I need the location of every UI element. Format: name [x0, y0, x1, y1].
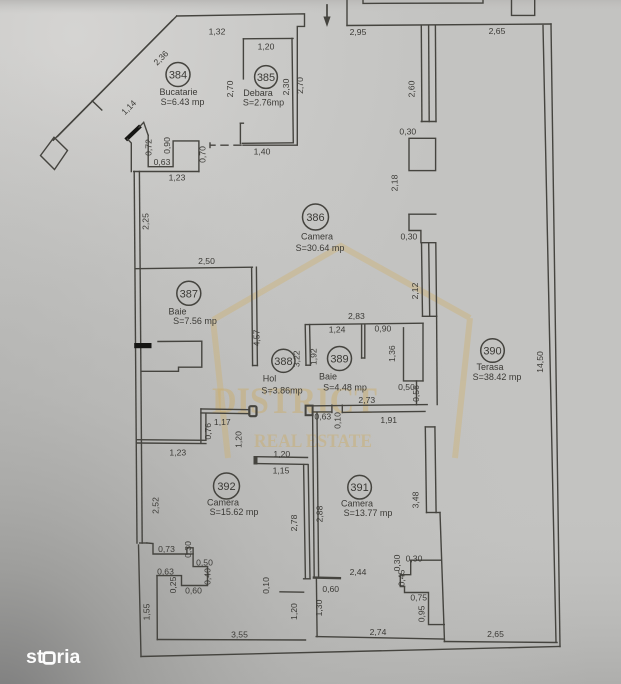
svg-text:0,30: 0,30	[399, 127, 416, 137]
svg-text:0,70: 0,70	[198, 146, 208, 163]
svg-text:0,30: 0,30	[183, 541, 193, 558]
svg-text:0,25: 0,25	[168, 576, 178, 593]
svg-text:14,50: 14,50	[535, 351, 545, 373]
svg-text:0,76: 0,76	[203, 423, 213, 440]
svg-text:0,60: 0,60	[185, 585, 202, 595]
svg-text:1,15: 1,15	[273, 466, 290, 476]
svg-text:3,55: 3,55	[231, 630, 248, 640]
svg-text:2,88: 2,88	[315, 505, 325, 522]
svg-text:0,45: 0,45	[397, 569, 407, 586]
svg-text:2,12: 2,12	[410, 282, 420, 299]
svg-text:0,63: 0,63	[157, 567, 174, 577]
svg-text:S=2.76mp: S=2.76mp	[243, 98, 284, 108]
svg-text:S=4.48 mp: S=4.48 mp	[323, 382, 367, 392]
svg-text:2,18: 2,18	[390, 174, 400, 191]
svg-text:S=7.56 mp: S=7.56 mp	[173, 316, 217, 326]
svg-text:Camera: Camera	[207, 498, 239, 508]
svg-text:1,40: 1,40	[254, 147, 271, 157]
svg-text:S=3.86mp: S=3.86mp	[261, 386, 302, 396]
svg-text:1,24: 1,24	[329, 325, 346, 335]
svg-text:0,95: 0,95	[416, 605, 426, 622]
svg-text:0,63: 0,63	[314, 412, 331, 422]
svg-text:ria: ria	[57, 646, 81, 668]
svg-text:1,20: 1,20	[273, 449, 290, 459]
svg-text:2,44: 2,44	[350, 567, 367, 577]
svg-text:Camera: Camera	[341, 499, 373, 509]
svg-text:S=6.43 mp: S=6.43 mp	[161, 97, 205, 107]
svg-text:390: 390	[483, 346, 501, 358]
svg-text:384: 384	[169, 70, 187, 82]
svg-text:0,10: 0,10	[332, 412, 342, 429]
svg-text:1,91: 1,91	[380, 415, 397, 425]
svg-text:2,60: 2,60	[407, 80, 417, 97]
svg-text:Bucatarie: Bucatarie	[159, 87, 197, 97]
svg-text:1,92: 1,92	[309, 348, 319, 365]
svg-text:0,60: 0,60	[322, 584, 339, 594]
svg-text:0,40: 0,40	[203, 568, 213, 585]
svg-text:387: 387	[180, 288, 198, 300]
svg-text:0,10: 0,10	[261, 577, 271, 594]
svg-text:Hol: Hol	[263, 373, 277, 383]
svg-text:391: 391	[350, 482, 368, 494]
svg-text:388: 388	[274, 356, 292, 368]
svg-text:S=30.64 mp: S=30.64 mp	[296, 243, 345, 253]
svg-text:0,90: 0,90	[375, 323, 392, 333]
svg-text:1,23: 1,23	[169, 173, 186, 183]
svg-text:0,72: 0,72	[144, 139, 154, 156]
svg-text:S=15.62 mp: S=15.62 mp	[210, 507, 259, 517]
svg-text:1,20: 1,20	[289, 603, 299, 620]
svg-text:0,30: 0,30	[392, 554, 402, 571]
svg-text:Baie: Baie	[168, 307, 186, 317]
svg-text:1,20: 1,20	[234, 431, 244, 448]
svg-text:2,25: 2,25	[141, 213, 151, 230]
svg-text:2,78: 2,78	[289, 514, 299, 531]
svg-text:2,74: 2,74	[370, 627, 387, 637]
svg-text:1,17: 1,17	[214, 417, 231, 427]
svg-text:1,23: 1,23	[169, 448, 186, 458]
svg-text:3,22: 3,22	[292, 350, 302, 367]
svg-text:386: 386	[306, 212, 324, 224]
svg-text:2,52: 2,52	[151, 497, 161, 514]
svg-text:4,57: 4,57	[252, 329, 262, 346]
svg-text:0,75: 0,75	[410, 593, 427, 603]
svg-text:385: 385	[257, 72, 275, 84]
svg-text:392: 392	[217, 481, 235, 493]
svg-text:2,65: 2,65	[489, 26, 506, 36]
svg-text:1,20: 1,20	[258, 42, 275, 52]
svg-text:0,73: 0,73	[158, 544, 175, 554]
svg-text:2,70: 2,70	[225, 80, 235, 97]
svg-text:0,50: 0,50	[196, 558, 213, 568]
svg-text:Debara: Debara	[243, 88, 273, 98]
svg-text:1,32: 1,32	[209, 27, 226, 37]
svg-text:2,70: 2,70	[295, 77, 305, 94]
svg-text:S=13.77 mp: S=13.77 mp	[344, 508, 393, 518]
svg-text:389: 389	[330, 354, 348, 366]
svg-text:2,65: 2,65	[487, 629, 504, 639]
svg-text:Baie: Baie	[319, 372, 337, 382]
svg-text:st: st	[26, 646, 44, 668]
svg-text:2,95: 2,95	[350, 27, 367, 37]
svg-text:2,83: 2,83	[348, 311, 365, 321]
svg-text:0,90: 0,90	[162, 137, 172, 154]
svg-text:2,50: 2,50	[198, 256, 215, 266]
svg-text:0,30: 0,30	[406, 554, 423, 564]
svg-text:Camera: Camera	[301, 232, 333, 242]
svg-text:0,56: 0,56	[411, 385, 421, 402]
svg-text:0,30: 0,30	[401, 232, 418, 242]
svg-text:Terasa: Terasa	[476, 362, 503, 372]
svg-text:1,36: 1,36	[387, 345, 397, 362]
svg-text:3,48: 3,48	[411, 491, 421, 508]
svg-text:2,30: 2,30	[281, 78, 291, 95]
svg-text:1,30: 1,30	[314, 599, 324, 616]
svg-text:0,63: 0,63	[154, 157, 171, 167]
svg-text:1,55: 1,55	[142, 603, 152, 620]
svg-text:S=38.42 mp: S=38.42 mp	[473, 372, 522, 382]
svg-text:2,73: 2,73	[358, 395, 375, 405]
